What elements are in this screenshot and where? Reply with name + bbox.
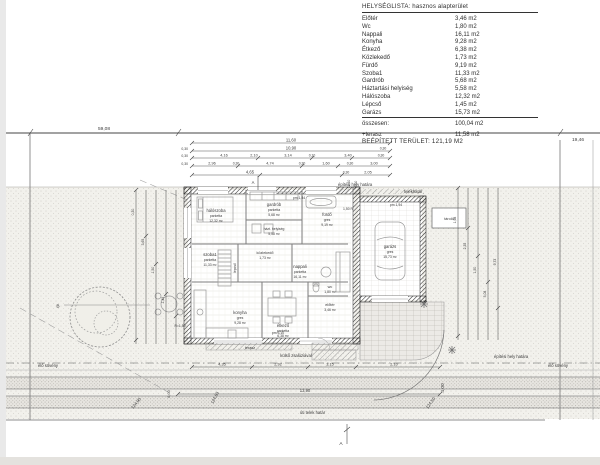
room-name: Étkező [362, 47, 455, 55]
storage-box: tároló [432, 208, 466, 228]
parapet-note: pm 1,84 [293, 196, 305, 200]
room-name: Hálószoba [362, 94, 455, 102]
radius-note: 1,50 R [343, 207, 354, 211]
room-area: 15,73 m2 [455, 110, 480, 118]
dim-label: 0,30 [378, 154, 385, 158]
plot-boundary-label: telekhatár [404, 189, 423, 194]
dim-label: 2,35 [463, 243, 467, 250]
shutter-note: külső zsalúziával [280, 353, 311, 358]
room-name: Lépcső [362, 102, 455, 110]
svg-text:konyha: konyha [233, 310, 247, 315]
dim-label: 0,30 [233, 162, 240, 166]
building-line-label-right: építési hely határa [494, 354, 529, 359]
dim-label: 0,30 [380, 147, 387, 151]
dim-label: 2,92 [274, 363, 281, 367]
section-marker-a-bottom: A [339, 424, 350, 447]
svg-text:közlekedő: közlekedő [256, 251, 273, 255]
built-area-note: BEÉPÍTETT TERÜLET: 121,19 M2 [362, 138, 463, 145]
svg-text:gres: gres [324, 218, 331, 222]
svg-text:12,32 m²: 12,32 m² [209, 219, 223, 223]
dim-label: 0,30 [181, 154, 188, 158]
room-list-row: Wc 1,80 m2 [362, 24, 552, 32]
dim-label: 1,60 [322, 162, 329, 166]
svg-text:wc: wc [328, 285, 333, 289]
svg-text:fürdő: fürdő [322, 212, 332, 217]
total-label: összesen: [362, 121, 455, 127]
svg-text:5,68 m²: 5,68 m² [268, 213, 280, 217]
dim-label: 0,30 [181, 162, 188, 166]
svg-text:házt. helyiség: házt. helyiség [264, 227, 285, 231]
room-list-row: Szoba1 11,33 m2 [362, 71, 552, 79]
room-area: 12,32 m2 [455, 94, 480, 102]
svg-text:parketta: parketta [268, 208, 280, 212]
dim-label: 13,90 [300, 388, 311, 393]
room-name: Garázs [362, 110, 455, 118]
dim-label: 3,00 [370, 162, 377, 166]
dim-label: 4,16 [220, 154, 227, 158]
parapet-note: pm 3,10 [272, 331, 284, 335]
svg-text:gardrób: gardrób [267, 202, 282, 207]
floor-plan-sheet: tároló 59,08 19,46 11,60 0,30 10,90 0,30… [0, 0, 600, 465]
room-list-row: Garázs 15,73 m2 [362, 110, 538, 119]
room-name: Szoba1 [362, 71, 455, 79]
dim-label: 3,40 [344, 154, 351, 158]
svg-text:hálószoba: hálószoba [206, 208, 226, 213]
room-name: Előtér [362, 16, 455, 24]
dim-label: 4,00 [440, 383, 446, 393]
hedge-label-right: élő sövény [548, 363, 569, 368]
room-list-row: Háztartási helyiség 5,58 m2 [362, 86, 552, 94]
room-name: Wc [362, 24, 455, 32]
svg-text:9,19 m²: 9,19 m² [321, 223, 333, 227]
dim-label: 0,30 [343, 171, 350, 175]
svg-text:nappali: nappali [293, 264, 307, 269]
dim-label: 1,45 [161, 297, 165, 304]
parapet-note: pm 1,94 [390, 203, 402, 207]
room-list-table: HELYSÉGLISTA: hasznos alapterület Előtér… [362, 3, 552, 138]
dim-label: 9,73 [493, 259, 497, 266]
total-value: 100,04 m2 [455, 121, 483, 127]
dim-label: 3,14 [284, 154, 291, 158]
room-area: 9,28 m2 [455, 39, 477, 47]
room-list-row: Gardrób 5,68 m2 [362, 78, 552, 86]
dim-label: 2,96 [208, 162, 215, 166]
svg-text:15,73 m²: 15,73 m² [383, 255, 397, 259]
room-gardrob: gardróbparketta5,68 m² [267, 202, 282, 217]
room-area: 6,38 m2 [455, 47, 477, 55]
room-list-row: Hálószoba 12,32 m2 [362, 94, 552, 102]
room-list-title: HELYSÉGLISTA: hasznos alapterület [362, 3, 538, 13]
room-area: 1,80 m2 [455, 24, 477, 32]
dim-label: 0,30 [181, 147, 188, 151]
room-area: 16,11 m2 [455, 32, 480, 40]
dim-label: 0,10 [309, 154, 316, 158]
room-name: Nappali [362, 32, 455, 40]
svg-text:A: A [339, 441, 343, 447]
dim-label: 10,90 [286, 146, 297, 151]
svg-text:A: A [252, 180, 255, 185]
hedge-label-left: élő sövény [38, 363, 59, 368]
room-list-row: Étkező 6,38 m2 [362, 47, 552, 55]
room-name: Háztartási helyiség [362, 86, 455, 94]
svg-text:terasz: terasz [245, 346, 255, 350]
dim-label: 3,15 [326, 363, 333, 367]
svg-text:étkező: étkező [277, 323, 290, 328]
total-row: összesen: 100,04 m2 [362, 121, 552, 127]
dim-overall-left: 59,08 [98, 126, 110, 132]
svg-text:gres: gres [387, 250, 394, 254]
room-area: 1,73 m2 [455, 55, 477, 63]
svg-text:9,28 m²: 9,28 m² [234, 321, 246, 325]
dim-label: 2,05 [364, 171, 371, 175]
dim-label: 3,65 [141, 239, 145, 246]
room-area: 5,68 m2 [455, 78, 477, 86]
dim-label: 1,50 [151, 267, 155, 274]
room-area: 11,33 m2 [455, 71, 480, 79]
dim-label: 0,30 [347, 162, 354, 166]
dim-label: 0,30 [299, 162, 306, 166]
radius-note: R=1,50 [174, 324, 185, 328]
svg-text:lépcső: lépcső [233, 263, 237, 273]
building-line-label-top: építési hely határa [338, 182, 373, 187]
svg-text:gres: gres [237, 316, 244, 320]
room-name: Fürdő [362, 63, 455, 71]
dim-label: 1,98 [453, 217, 457, 224]
svg-text:11,33 m²: 11,33 m² [203, 263, 217, 267]
dim-label: 2,10 [250, 154, 257, 158]
svg-text:16,11 m²: 16,11 m² [293, 275, 307, 279]
tree [70, 287, 130, 347]
dim-label: 11,60 [286, 138, 297, 143]
dim-label: 4,65 [246, 170, 255, 175]
room-name: Gardrób [362, 78, 455, 86]
dim-label: 5,08 [483, 291, 487, 298]
room-list-row: Közlekedő 1,73 m2 [362, 55, 552, 63]
room-terasz: terasz [245, 346, 255, 350]
svg-text:előtér: előtér [325, 303, 335, 307]
room-name: Közlekedő [362, 55, 455, 63]
room-area: 9,19 m2 [455, 63, 477, 71]
room-nappali: nappaliparketta16,11 m² [293, 264, 307, 279]
svg-text:parketta: parketta [294, 270, 306, 274]
dim-label: 1,50 [473, 267, 477, 274]
room-list-row: Nappali 16,11 m2 [362, 32, 552, 40]
room-lepcso: lépcső [233, 263, 237, 273]
dim-label: 4,74 [266, 162, 273, 166]
room-list-rows: Előtér 3,46 m2 Wc 1,80 m2 Nappali 16,11 … [362, 16, 552, 118]
dim-label: 2,10 [390, 363, 397, 367]
svg-text:parketta: parketta [210, 214, 222, 218]
room-area: 3,46 m2 [455, 16, 477, 24]
terrace [206, 343, 358, 350]
room-list-row: Fürdő 9,19 m2 [362, 63, 552, 71]
room-list-row: Konyha 9,28 m2 [362, 39, 552, 47]
scan-edge-left [0, 0, 6, 465]
svg-text:5,58 m²: 5,58 m² [268, 232, 280, 236]
dim-label: 0,30 [131, 209, 135, 216]
street-boundary-label: úti telek határ [300, 410, 326, 415]
room-area: 5,58 m2 [455, 86, 477, 94]
svg-text:3,46 m²: 3,46 m² [324, 308, 336, 312]
svg-text:1,73 m²: 1,73 m² [259, 256, 271, 260]
svg-text:garázs: garázs [384, 244, 397, 249]
dim-label: 6,00 [167, 390, 171, 397]
svg-text:szoba1: szoba1 [203, 252, 217, 257]
svg-text:B: B [56, 304, 59, 310]
room-area: 1,45 m2 [455, 102, 477, 110]
svg-text:1,80 m²: 1,80 m² [324, 290, 336, 294]
scan-edge-bottom [0, 457, 600, 465]
room-list-row: Lépcső 1,45 m2 [362, 102, 552, 110]
dim-label: 4,35 [218, 363, 225, 367]
room-list-row: Előtér 3,46 m2 [362, 16, 552, 24]
svg-text:parketta: parketta [204, 258, 216, 262]
room-szoba1: szoba1parketta11,33 m² [203, 252, 217, 267]
dim-overall-right: 19,46 [572, 137, 584, 143]
